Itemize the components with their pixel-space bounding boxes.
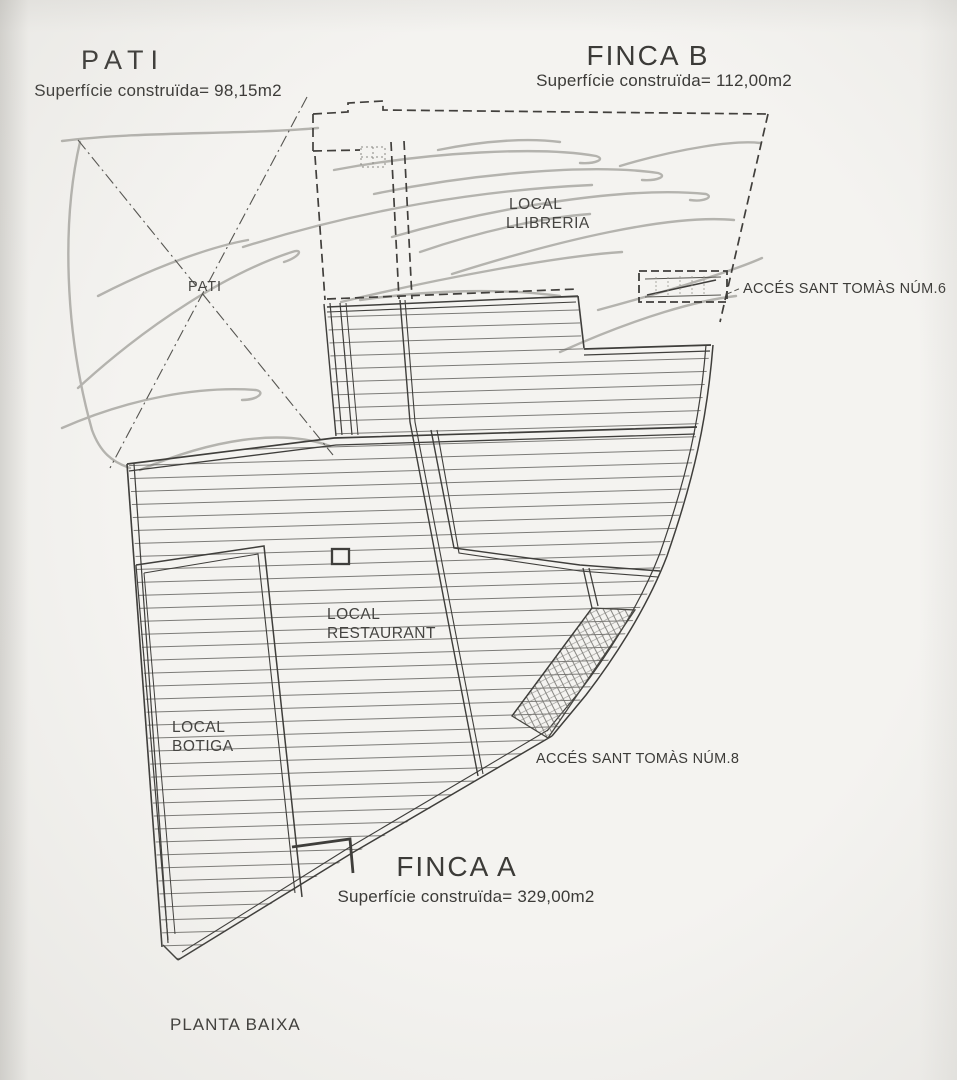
acces-sant-tomas-8-label: ACCÉS SANT TOMÀS NÚM.8 [536,750,739,768]
finca-b-area-label: Superfície construïda= 112,00m2 [536,70,792,91]
local-botiga-label-line2: BOTIGA [172,737,234,756]
floor-plan-drawing [0,0,957,1080]
local-llibreria-label-line2: LLIBRERIA [506,214,590,233]
finca-a-title: FINCA A [396,849,517,884]
finca-b-title: FINCA B [587,38,710,73]
local-botiga-label-line1: LOCAL [172,718,225,737]
acces-sant-tomas-6-label: ACCÉS SANT TOMÀS NÚM.6 [743,280,946,298]
scanned-floor-plan-page: PATI Superfície construïda= 98,15m2 FINC… [0,0,957,1080]
pati-zone-label: PATI [188,278,222,296]
sheet-title-planta-baixa: PLANTA BAIXA [170,1014,301,1035]
local-restaurant-label-line2: RESTAURANT [327,624,436,643]
local-llibreria-label-line1: LOCAL [509,195,562,214]
local-restaurant-label-line1: LOCAL [327,605,380,624]
pati-title: PATI [81,44,165,78]
column-marker [332,549,349,564]
pati-area-label: Superfície construïda= 98,15m2 [34,80,281,101]
finca-a-area-label: Superfície construïda= 329,00m2 [337,886,594,907]
